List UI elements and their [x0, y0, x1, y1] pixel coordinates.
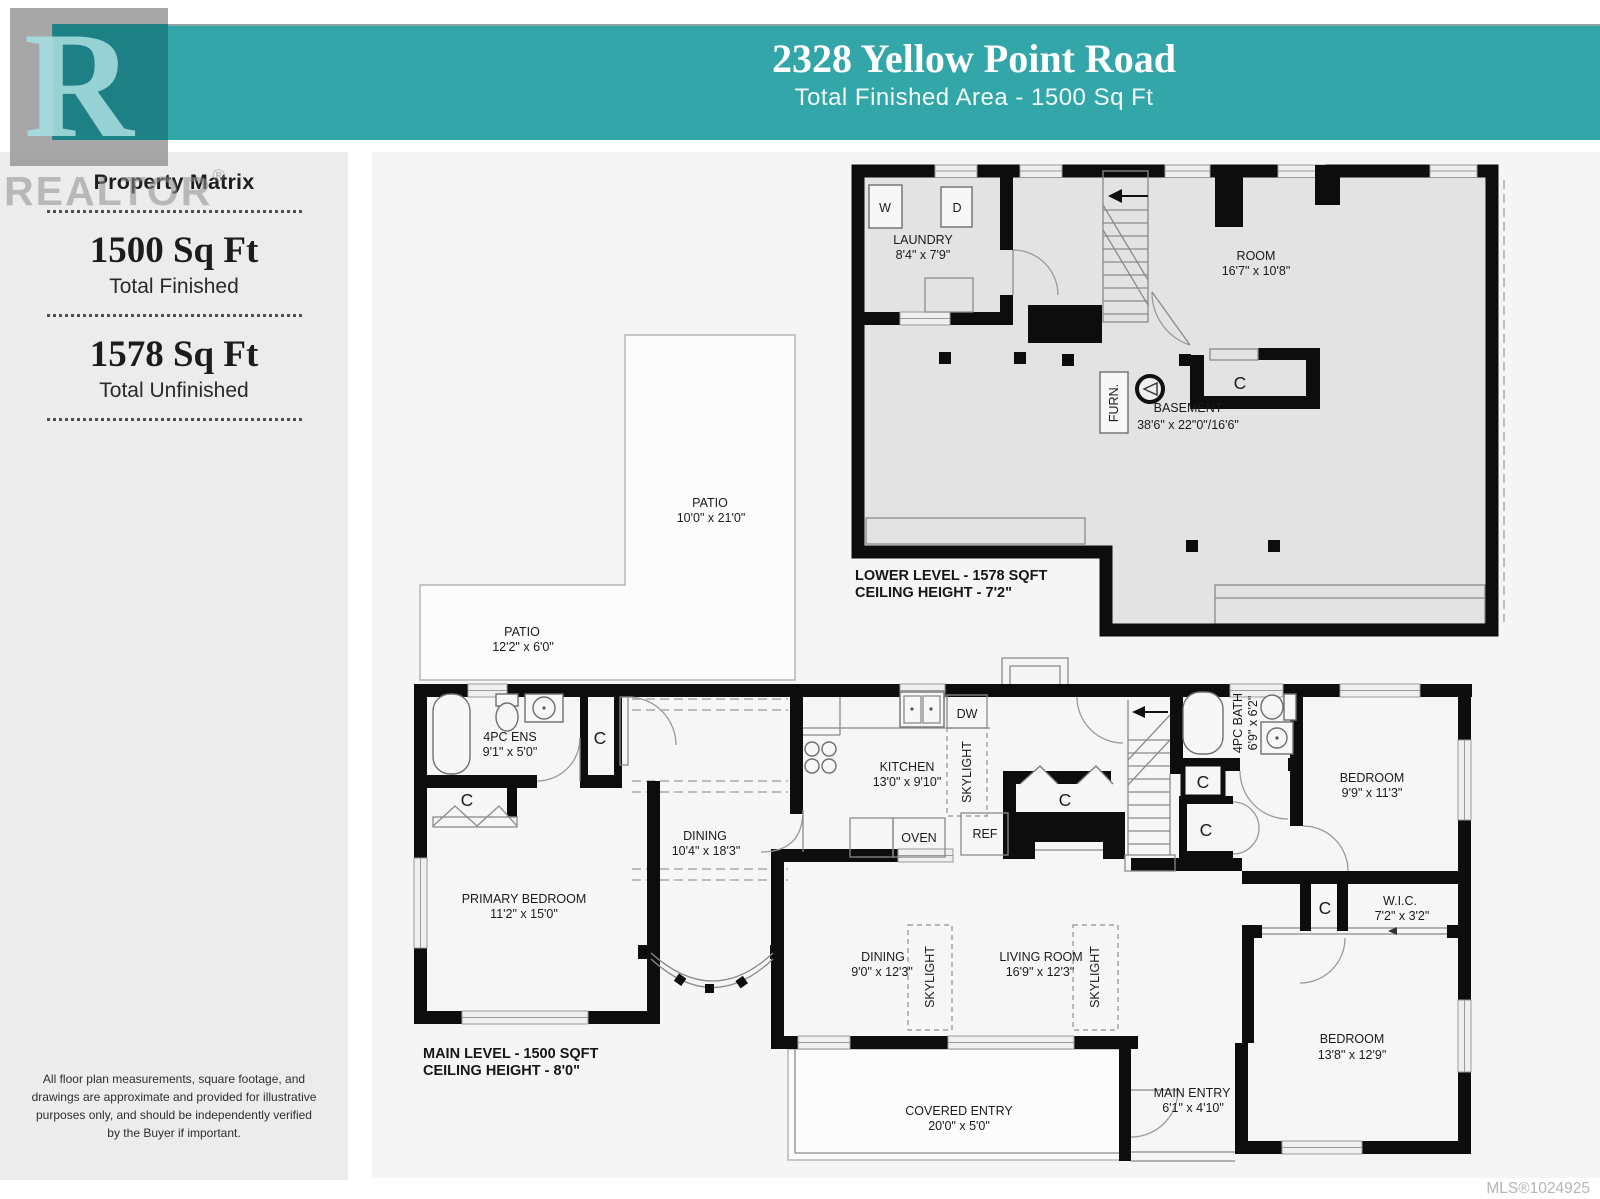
- patio2-dims: 12'2" x 6'0": [492, 640, 554, 654]
- room-name: ROOM: [1237, 249, 1276, 263]
- wic-name: W.I.C.: [1383, 894, 1417, 908]
- room-dims: 16'7" x 10'8": [1222, 264, 1291, 278]
- closet-label: C: [1059, 790, 1072, 810]
- main-entry-name: MAIN ENTRY: [1154, 1086, 1232, 1100]
- main-level-ceiling: CEILING HEIGHT - 8'0": [423, 1063, 580, 1079]
- bedroom1-dims: 9'9" x 11'3": [1342, 786, 1403, 800]
- skylight-label: SKYLIGHT: [960, 741, 974, 803]
- closet-label: C: [1234, 373, 1247, 393]
- washer-label: W: [879, 201, 891, 215]
- bedroom2-name: BEDROOM: [1320, 1032, 1385, 1046]
- basement-name: BASEMENT: [1154, 401, 1223, 415]
- living-name: LIVING ROOM: [999, 950, 1082, 964]
- floor-drain: [1137, 376, 1163, 402]
- floorplan-page: 2328 Yellow Point Road Total Finished Ar…: [0, 0, 1600, 1199]
- dining2-dims: 9'0" x 12'3": [851, 965, 913, 979]
- bedroom1-name: BEDROOM: [1340, 771, 1405, 785]
- closet-label: C: [594, 728, 607, 748]
- patio2-name: PATIO: [504, 625, 540, 639]
- bath-name: 4PC BATH: [1231, 693, 1245, 753]
- closet-label: C: [1319, 898, 1332, 918]
- main-entry-dims: 6'1" x 4'10": [1162, 1101, 1224, 1115]
- patios: PATIO 10'0" x 21'0" PATIO 12'2" x 6'0": [420, 335, 795, 680]
- patio1-name: PATIO: [692, 496, 728, 510]
- dishwasher-label: DW: [957, 707, 978, 721]
- closet-label: C: [461, 790, 474, 810]
- realtor-logo-r-glyph: R: [24, 0, 134, 176]
- realtor-logo: R: [10, 8, 168, 166]
- registered-mark: ®: [212, 166, 227, 185]
- main-level-plan: 4PC ENS 9'1" x 5'0" C C PRIMARY BEDROOM …: [414, 658, 1472, 1161]
- oven-label: OVEN: [901, 831, 936, 845]
- floorplan-svg: W D LAUNDRY 8'4" x 7'9" ROOM 16'7" x 10'…: [0, 0, 1600, 1199]
- lower-level-plan: W D LAUNDRY 8'4" x 7'9" ROOM 16'7" x 10'…: [855, 165, 1504, 630]
- covered-entry-name: COVERED ENTRY: [905, 1104, 1013, 1118]
- laundry-dims: 8'4" x 7'9": [896, 248, 951, 262]
- lower-level-ceiling: CEILING HEIGHT - 7'2": [855, 585, 1012, 601]
- basement-dims: 38'6" x 22"0"/16'6": [1137, 418, 1239, 432]
- dining-dims: 10'4" x 18'3": [672, 844, 741, 858]
- ensuite-name: 4PC ENS: [483, 730, 537, 744]
- dryer-label: D: [952, 201, 961, 215]
- fridge-label: REF: [973, 827, 998, 841]
- covered-entry-dims: 20'0" x 5'0": [928, 1119, 990, 1133]
- dining-name: DINING: [683, 829, 727, 843]
- closet-label: C: [1197, 772, 1210, 792]
- bath-dims: 6'9" x 6'2": [1246, 696, 1260, 751]
- dining2-name: DINING: [861, 950, 905, 964]
- wic-dims: 7'2" x 3'2": [1375, 909, 1430, 923]
- realtor-watermark-text: REALTOR®: [4, 166, 227, 215]
- kitchen-dims: 13'0" x 9'10": [873, 775, 942, 789]
- patio1-dims: 10'0" x 21'0": [677, 511, 746, 525]
- living-dims: 16'9" x 12'3": [1006, 965, 1075, 979]
- skylight-label: SKYLIGHT: [923, 946, 937, 1008]
- furnace-label: FURN.: [1107, 384, 1121, 422]
- laundry-name: LAUNDRY: [893, 233, 953, 247]
- main-level-title: MAIN LEVEL - 1500 SQFT: [423, 1046, 599, 1062]
- ensuite-dims: 9'1" x 5'0": [483, 745, 538, 759]
- closet-label: C: [1200, 820, 1213, 840]
- bedroom2-dims: 13'8" x 12'9": [1318, 1048, 1387, 1062]
- skylight-label: SKYLIGHT: [1088, 946, 1102, 1008]
- primary-bedroom-dims: 11'2" x 15'0": [490, 907, 558, 921]
- kitchen-name: KITCHEN: [880, 760, 935, 774]
- lower-level-title: LOWER LEVEL - 1578 SQFT: [855, 568, 1047, 584]
- primary-bedroom-name: PRIMARY BEDROOM: [462, 892, 587, 906]
